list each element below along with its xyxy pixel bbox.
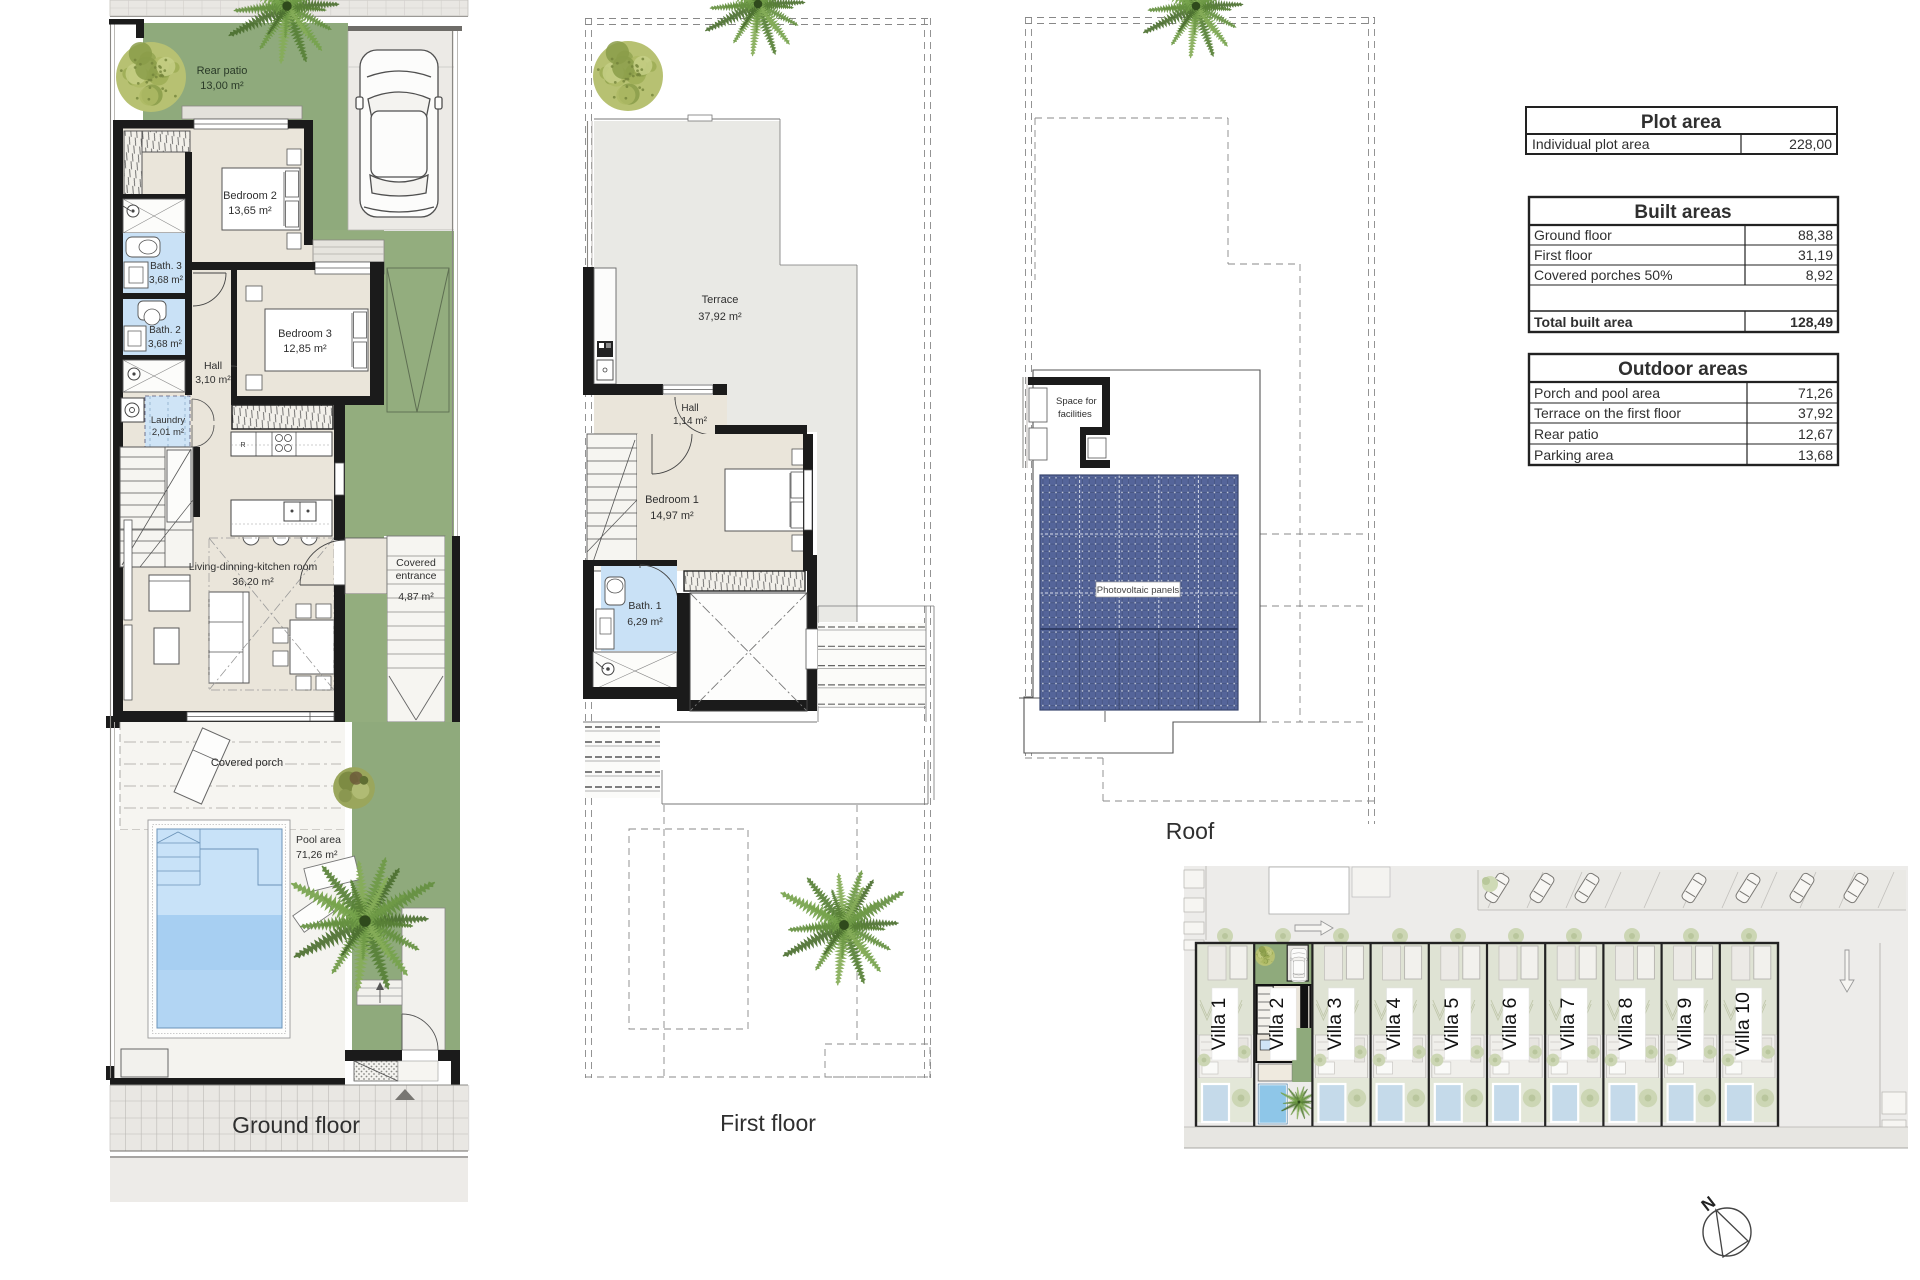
svg-text:3,68 m²: 3,68 m² (148, 339, 183, 350)
svg-text:Villa 7: Villa 7 (1557, 998, 1579, 1051)
svg-text:Parking area: Parking area (1534, 447, 1614, 463)
svg-text:Villa 1: Villa 1 (1208, 998, 1230, 1051)
svg-text:Villa 6: Villa 6 (1499, 998, 1521, 1051)
svg-text:Bath. 2: Bath. 2 (149, 325, 181, 336)
svg-text:71,26: 71,26 (1798, 385, 1833, 401)
svg-text:Covered porches 50%: Covered porches 50% (1534, 267, 1673, 283)
svg-text:3,10 m²: 3,10 m² (195, 374, 231, 386)
svg-text:13,68: 13,68 (1798, 447, 1833, 463)
svg-text:37,92: 37,92 (1798, 405, 1833, 421)
svg-text:2,01 m²: 2,01 m² (152, 427, 184, 438)
svg-text:Bedroom 1: Bedroom 1 (645, 494, 699, 506)
svg-text:Plot area: Plot area (1641, 112, 1722, 133)
svg-text:1,14 m²: 1,14 m² (673, 416, 708, 427)
svg-text:Terrace: Terrace (702, 294, 739, 306)
svg-text:8,92: 8,92 (1806, 267, 1833, 283)
svg-text:First floor: First floor (1534, 247, 1593, 263)
svg-text:12,67: 12,67 (1798, 426, 1833, 442)
svg-text:Bath. 3: Bath. 3 (150, 261, 182, 272)
svg-text:Villa 4: Villa 4 (1383, 997, 1405, 1050)
svg-text:Covered: Covered (396, 557, 436, 569)
svg-text:13,00 m²: 13,00 m² (200, 80, 244, 92)
svg-text:First floor: First floor (720, 1110, 816, 1136)
svg-text:Rear patio: Rear patio (197, 65, 248, 77)
svg-text:31,19: 31,19 (1798, 247, 1833, 263)
svg-text:Individual plot area: Individual plot area (1532, 136, 1650, 152)
svg-text:88,38: 88,38 (1798, 227, 1833, 243)
svg-text:Ground floor: Ground floor (232, 1112, 360, 1138)
svg-text:228,00: 228,00 (1789, 136, 1832, 152)
svg-text:facilities: facilities (1058, 409, 1092, 420)
svg-text:4,87 m²: 4,87 m² (398, 591, 434, 603)
svg-text:6,29 m²: 6,29 m² (627, 616, 663, 628)
svg-text:Villa 2: Villa 2 (1266, 998, 1288, 1051)
svg-text:128,49: 128,49 (1790, 314, 1833, 330)
svg-text:3,68 m²: 3,68 m² (149, 275, 184, 286)
svg-text:14,97 m²: 14,97 m² (650, 510, 694, 522)
svg-text:Total built area: Total built area (1534, 314, 1633, 330)
svg-text:Roof: Roof (1166, 818, 1215, 844)
svg-text:Hall: Hall (204, 360, 222, 372)
svg-text:Villa 9: Villa 9 (1674, 998, 1696, 1051)
svg-text:36,20 m²: 36,20 m² (232, 576, 274, 588)
svg-text:12,85 m²: 12,85 m² (283, 343, 327, 355)
svg-text:Bedroom 3: Bedroom 3 (278, 328, 332, 340)
svg-text:Pool area: Pool area (296, 834, 341, 846)
svg-text:Living-dinning-kitchen room: Living-dinning-kitchen room (189, 561, 318, 573)
svg-text:Porch and pool area: Porch and pool area (1534, 385, 1660, 401)
svg-text:Built areas: Built areas (1634, 202, 1731, 223)
svg-text:Hall: Hall (681, 403, 698, 414)
svg-text:Outdoor areas: Outdoor areas (1618, 359, 1748, 380)
svg-text:Bath. 1: Bath. 1 (628, 600, 661, 612)
svg-text:71,26 m²: 71,26 m² (296, 849, 338, 861)
svg-text:Villa 5: Villa 5 (1441, 997, 1463, 1050)
svg-text:entrance: entrance (396, 570, 437, 582)
svg-text:Ground floor: Ground floor (1534, 227, 1612, 243)
svg-text:Villa 10: Villa 10 (1732, 992, 1754, 1056)
svg-text:Terrace on the first floor: Terrace on the first floor (1534, 405, 1681, 421)
svg-text:Rear patio: Rear patio (1534, 426, 1599, 442)
svg-text:Space for: Space for (1056, 396, 1097, 407)
svg-text:37,92 m²: 37,92 m² (698, 311, 742, 323)
svg-text:Photovoltaic panels: Photovoltaic panels (1097, 585, 1180, 596)
svg-text:Villa 8: Villa 8 (1615, 998, 1637, 1051)
svg-text:Covered porch: Covered porch (211, 757, 283, 769)
svg-text:Bedroom 2: Bedroom 2 (223, 190, 277, 202)
svg-text:13,65 m²: 13,65 m² (228, 205, 272, 217)
svg-text:R: R (240, 442, 245, 449)
svg-text:Villa 3: Villa 3 (1324, 998, 1346, 1051)
svg-text:Laundry: Laundry (151, 415, 186, 426)
